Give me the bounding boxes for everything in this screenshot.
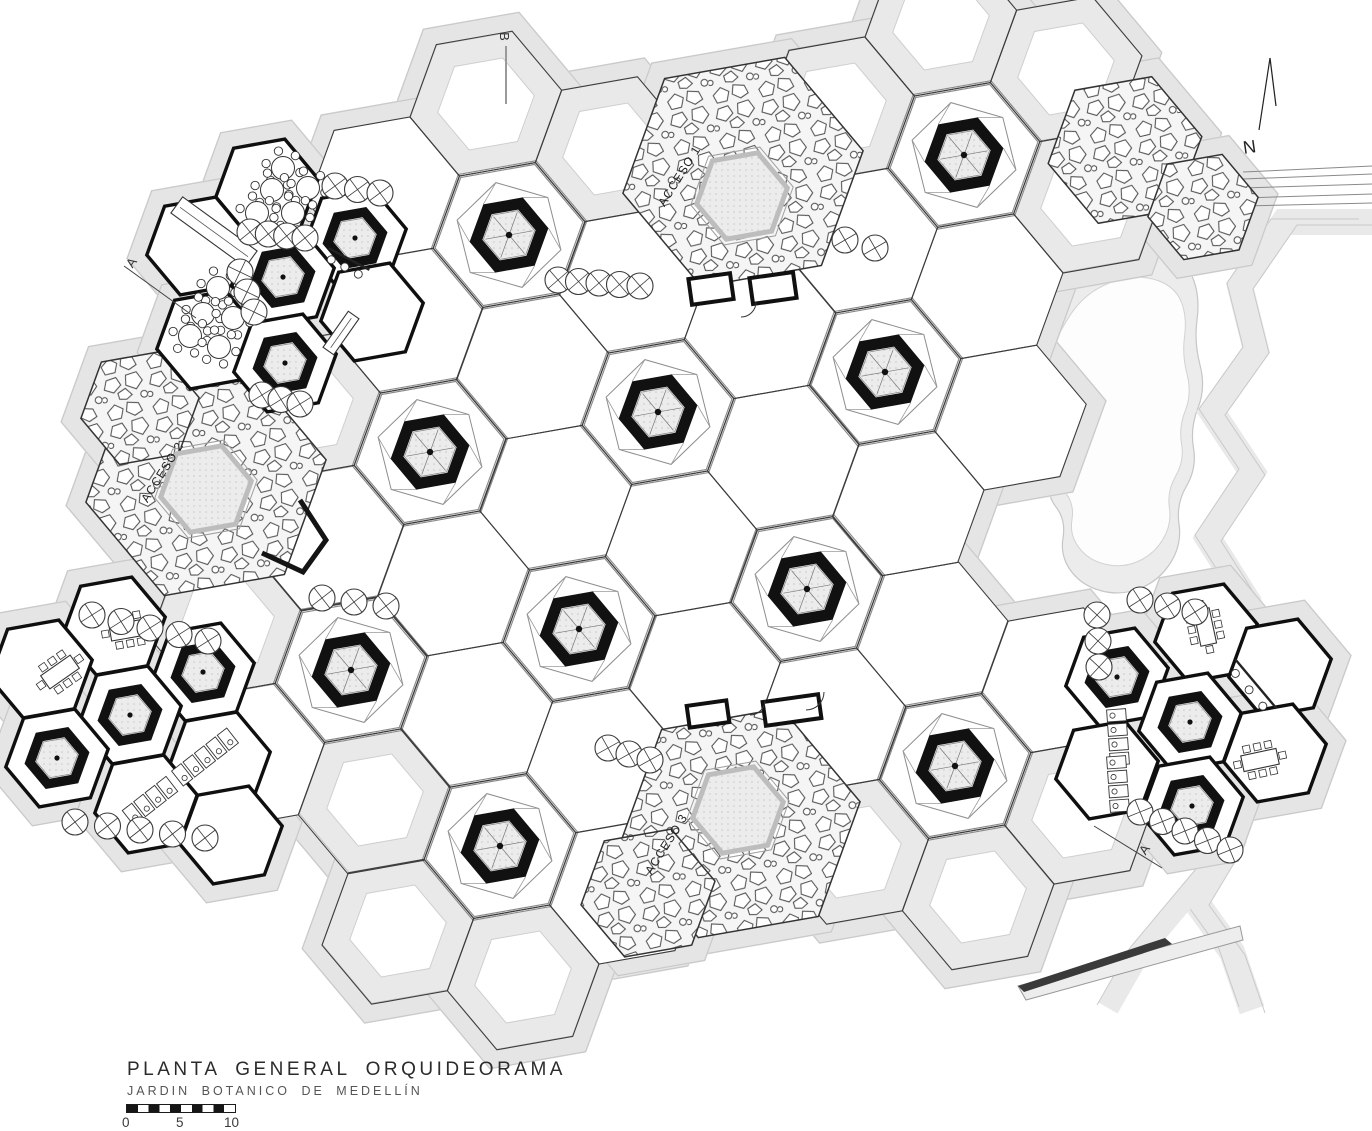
scale-label-0: 0 [122,1115,130,1130]
scale-bar-labels: 0 5 10 [126,1115,256,1131]
round-table [297,177,320,200]
kiosk-room [749,272,796,304]
north-arrow-label: N [1242,137,1257,157]
scale-bar [126,1104,236,1113]
section-marker-b: B [498,32,511,41]
round-table [208,336,231,359]
round-table [282,202,305,225]
scale-label-10: 10 [224,1115,239,1130]
north-arrow-icon [1259,58,1276,130]
round-table [207,277,230,300]
kiosk-room [763,694,822,726]
orquideorama-plan-sheet: PLANTA GENERAL ORQUIDEORAMA JARDIN BOTAN… [0,0,1372,1131]
kiosk-room [688,273,733,305]
kiosk-room [687,700,730,727]
plan-title: PLANTA GENERAL ORQUIDEORAMA [127,1060,566,1079]
scale-label-5: 5 [176,1115,184,1130]
plan-subtitle: JARDIN BOTANICO DE MEDELLÍN [127,1085,423,1098]
